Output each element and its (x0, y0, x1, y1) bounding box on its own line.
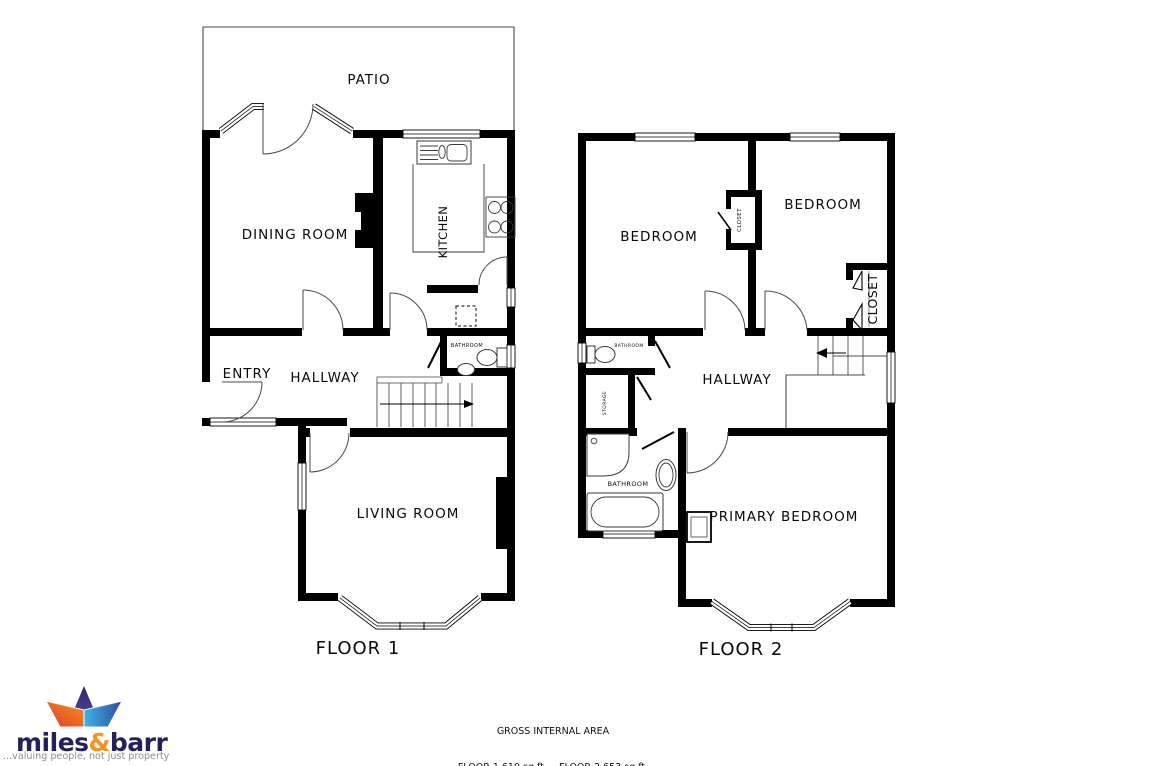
stairs-arrow-icon (464, 400, 474, 408)
patio-label: PATIO (347, 72, 390, 88)
floor2-title: FLOOR 2 (699, 639, 784, 660)
bedroom-right-door (765, 291, 807, 330)
primary-label: PRIMARY BEDROOM (710, 509, 859, 525)
toilet-bowl (477, 350, 497, 366)
primary-fireplace (687, 512, 711, 542)
summary-title: GROSS INTERNAL AREA (253, 726, 853, 738)
bathroom-top-label: BATHROOM (614, 343, 643, 349)
area-summary: GROSS INTERNAL AREA FLOOR 1 619 sq.ft. F… (253, 702, 853, 766)
milesbarr-logo-icon (0, 683, 170, 733)
primary-bay-window (712, 602, 850, 632)
dining-label: DINING ROOM (242, 227, 349, 243)
dining-bay-window (221, 104, 352, 154)
bathroom-top-fixtures (587, 346, 615, 363)
kitchen-window (403, 130, 480, 138)
living-chimney-breast (496, 477, 515, 549)
kitchen-door (390, 293, 427, 330)
bathroom1-label: BATHROOM (451, 343, 483, 349)
kitchen-label: KITCHEN (436, 206, 450, 259)
bathroom-top-window (578, 343, 586, 363)
storage-label: STORAGE (602, 391, 608, 415)
entry-door (222, 382, 262, 422)
hallway1-label: HALLWAY (290, 370, 359, 386)
shower (587, 434, 629, 476)
bathroom-main-label: BATHROOM (608, 480, 649, 488)
hallway-window (210, 418, 276, 426)
closet-right-label: CLOSET (865, 274, 880, 325)
bedroom-left-door (705, 291, 745, 330)
bathroom-top-door (655, 341, 670, 368)
stairs-floor1 (377, 377, 474, 427)
toilet-tank (497, 348, 507, 367)
living-side-window (298, 463, 306, 510)
dining-door (303, 290, 343, 330)
kitchen-fixtures (413, 141, 515, 326)
floor1-plan: PATIO DINING ROOM KITCHEN ENTRY HALLWAY … (202, 27, 515, 659)
toilet2-bowl (595, 347, 615, 363)
kitchen-corner-door (479, 257, 507, 285)
appliance-dashed (456, 306, 476, 326)
bathroom-main-door (642, 432, 674, 449)
bedroom-right-label: BEDROOM (784, 197, 861, 213)
bedroom-left-label: BEDROOM (620, 229, 697, 245)
living-label: LIVING ROOM (357, 506, 460, 522)
closet-mid-label: CLOSET (737, 208, 743, 232)
floor1-title: FLOOR 1 (316, 638, 401, 659)
stairs-floor2 (786, 336, 887, 428)
lobby-window (507, 288, 515, 307)
living-door (310, 433, 349, 472)
floorplan-page: PATIO DINING ROOM KITCHEN ENTRY HALLWAY … (0, 0, 1152, 766)
bedroom-right-window (790, 133, 840, 141)
storage-door (637, 377, 651, 400)
floor2-plan: BEDROOM BEDROOM CLOSET CLOSET BATHROOM S… (578, 133, 895, 660)
closet-mid-door (718, 212, 731, 230)
brand-tagline: ...valuing people, not just property (3, 751, 169, 762)
summary-floors: FLOOR 1 619 sq.ft. FLOOR 2 653 sq.ft. (253, 762, 853, 766)
basin (458, 364, 475, 376)
bathroom1-window (507, 345, 515, 368)
bedroom-left-window (635, 133, 695, 141)
living-bay-window (340, 598, 480, 630)
floorplan-drawing: PATIO DINING ROOM KITCHEN ENTRY HALLWAY … (0, 0, 1152, 766)
entry-label: ENTRY (223, 366, 272, 382)
hallway2-label: HALLWAY (702, 372, 771, 388)
floor1-windows (210, 130, 515, 510)
toilet2-tank (587, 346, 595, 363)
hallway2-window (887, 352, 895, 403)
stairwell-edge (786, 375, 865, 428)
primary-door (687, 432, 728, 473)
patio-door (263, 104, 313, 154)
